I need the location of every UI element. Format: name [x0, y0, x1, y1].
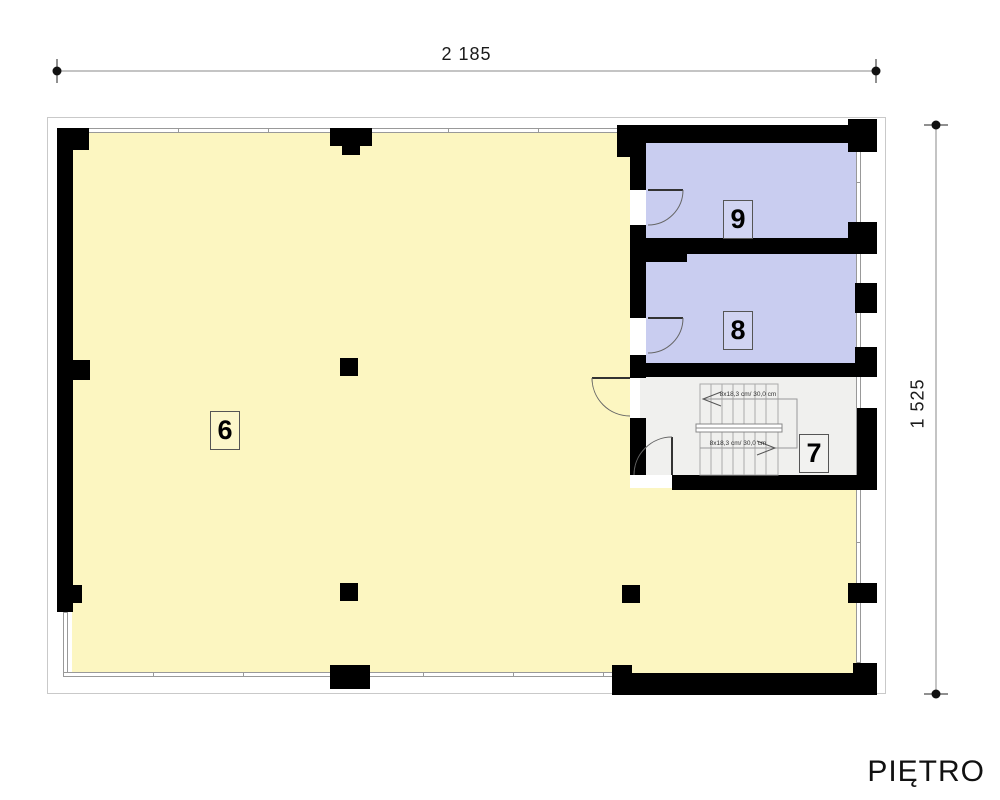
- pillar-bottom-wall: [330, 665, 370, 689]
- room-label-7: 7: [799, 434, 829, 473]
- wall-between-room-9-and-8: [630, 238, 877, 254]
- wall-partition-vertical-d: [630, 418, 646, 475]
- room-label-6: 6: [210, 411, 240, 450]
- pillar-top-wall: [330, 128, 372, 146]
- dimension-end-dot: [932, 690, 941, 699]
- floor-plan-canvas: 8x18,3 cm/ 30,0 cm 8x18,3 cm/ 30,0 cm 6 …: [0, 0, 1000, 800]
- pillar-interior-3: [622, 585, 640, 603]
- pillar-left-lower: [57, 585, 82, 603]
- pillar-right-2: [855, 283, 877, 313]
- wall-between-room-8-and-staircase: [630, 363, 877, 377]
- pillar-top-wall-stub: [342, 146, 360, 155]
- wall-bottom-right: [612, 673, 877, 695]
- dimension-end-dot: [53, 67, 62, 76]
- dimension-height-label: 1 525: [908, 364, 929, 444]
- dimension-end-dot: [872, 67, 881, 76]
- room-number: 7: [806, 438, 821, 469]
- dimension-width-label: 2 185: [57, 44, 876, 65]
- wall-staircase-bottom: [672, 475, 877, 490]
- pillar-right-staircase: [857, 408, 877, 478]
- wall-top-right: [617, 125, 877, 143]
- pillar-right-1: [848, 222, 877, 253]
- room-label-8: 8: [723, 311, 753, 350]
- pillar-interior-1: [340, 358, 358, 376]
- pillar-top-left-corner: [57, 128, 89, 150]
- dimension-end-dot: [932, 121, 941, 130]
- room-number: 8: [730, 315, 745, 346]
- pillar-left-middle: [57, 360, 90, 380]
- pillar-right-4: [848, 583, 877, 603]
- room-number: 6: [217, 415, 232, 446]
- pillar-right-3: [855, 347, 877, 377]
- wall-between-room-9-and-8-step: [646, 254, 687, 262]
- pillar-interior-2: [340, 583, 358, 601]
- pillar-top-right-corner: [848, 119, 877, 152]
- room-number: 9: [730, 204, 745, 235]
- room-label-9: 9: [723, 200, 753, 239]
- wall-partition-vertical-a: [630, 143, 646, 190]
- room-6-floor-extension: [630, 488, 858, 673]
- plan-title: PIĘTRO: [867, 755, 985, 789]
- window-band-left-lower: [63, 612, 68, 673]
- wall-bottom-right-end-block: [612, 665, 632, 695]
